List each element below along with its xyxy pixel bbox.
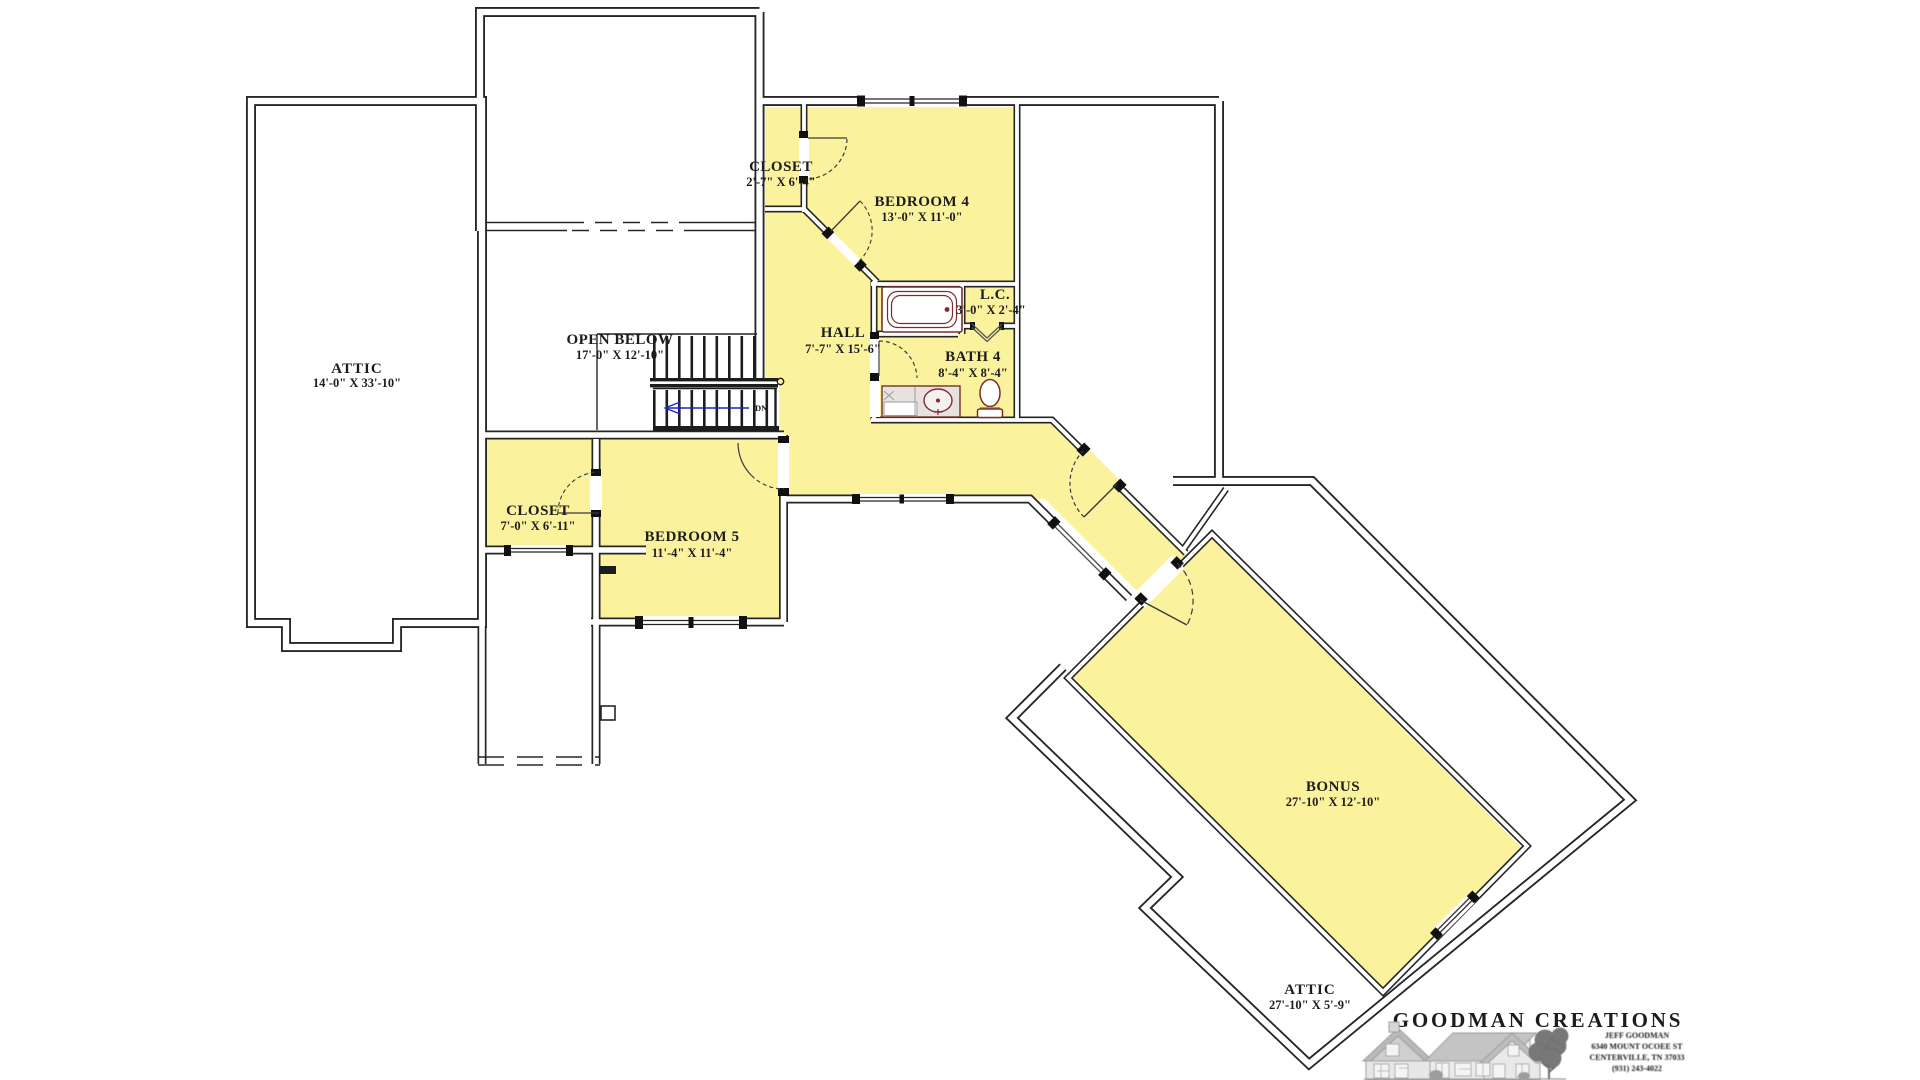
svg-text:2'-7" X 6'-4": 2'-7" X 6'-4" <box>746 175 815 189</box>
svg-text:ATTIC: ATTIC <box>331 361 382 377</box>
svg-text:CLOSET: CLOSET <box>506 503 570 519</box>
svg-text:8'-4" X 8'-4": 8'-4" X 8'-4" <box>938 366 1007 380</box>
svg-text:14'-0" X 33'-10": 14'-0" X 33'-10" <box>313 376 401 390</box>
svg-text:CLOSET: CLOSET <box>749 159 813 175</box>
svg-text:BEDROOM 5: BEDROOM 5 <box>645 529 740 545</box>
svg-text:ATTIC: ATTIC <box>1284 982 1335 998</box>
svg-text:BATH 4: BATH 4 <box>945 349 1001 365</box>
svg-text:L.C.: L.C. <box>980 287 1010 303</box>
svg-text:27'-10" X 5'-9": 27'-10" X 5'-9" <box>1269 998 1351 1012</box>
svg-text:DN: DN <box>755 403 768 413</box>
svg-text:(931) 243-4022: (931) 243-4022 <box>1612 1064 1662 1073</box>
svg-text:11'-4" X 11'-4": 11'-4" X 11'-4" <box>652 546 733 560</box>
svg-text:GOODMAN CREATIONS: GOODMAN CREATIONS <box>1393 1008 1683 1032</box>
svg-text:BEDROOM 4: BEDROOM 4 <box>875 194 970 210</box>
svg-text:13'-0" X 11'-0": 13'-0" X 11'-0" <box>881 210 962 224</box>
svg-text:CENTERVILLE, TN 37033: CENTERVILLE, TN 37033 <box>1590 1053 1685 1062</box>
svg-text:BONUS: BONUS <box>1306 779 1360 795</box>
svg-text:OPEN BELOW: OPEN BELOW <box>566 332 673 348</box>
svg-text:6340 MOUNT OCOEE ST: 6340 MOUNT OCOEE ST <box>1591 1042 1683 1051</box>
svg-text:7'-0" X 6'-11": 7'-0" X 6'-11" <box>501 519 576 533</box>
svg-text:27'-10" X 12'-10": 27'-10" X 12'-10" <box>1286 795 1380 809</box>
svg-text:3'-0" X 2'-4": 3'-0" X 2'-4" <box>956 303 1025 317</box>
svg-text:HALL: HALL <box>821 325 866 341</box>
svg-text:17'-0" X 12'-10": 17'-0" X 12'-10" <box>576 348 664 362</box>
svg-text:7'-7" X 15'-6": 7'-7" X 15'-6" <box>805 342 881 356</box>
svg-text:JEFF GOODMAN: JEFF GOODMAN <box>1605 1031 1670 1040</box>
